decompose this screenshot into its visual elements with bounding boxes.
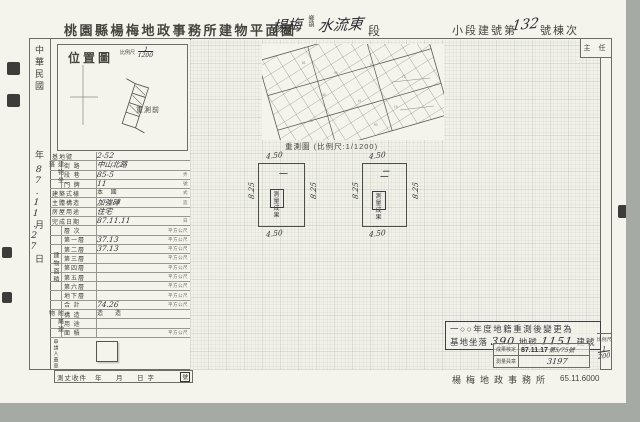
plan1-floor-label: 一 [277,167,288,180]
plan1-seal-stamp: 測量成果 [270,189,284,208]
svg-text:72: 72 [402,75,406,79]
svg-text:81: 81 [302,61,306,65]
binder-hole [7,94,20,107]
scale-box: 比例尺 1 200 [597,333,612,371]
table-row: 合 計74.26平方公尺 [50,301,190,310]
group-applicant: 申請人蓋章 [50,338,62,369]
cadastral-caption: 重測圖 (比例尺:1/1200) [285,141,378,152]
table-row: 層 次平方公尺 [50,226,190,235]
applicant-stamp-placeholder [96,341,118,362]
township-label: 鄉鎮 [306,15,313,27]
building-number-handwritten: 132 [511,15,540,34]
svg-text:8: 8 [370,63,372,67]
plan2-dim-left: 8.25 [351,182,360,200]
table-row: 第二層37.13平方公尺 [50,245,190,254]
group-annex: 附屬建物 [50,310,62,338]
receipt-label: 測丈收件 [55,372,87,382]
svg-text:96: 96 [334,71,338,75]
table-row: 第三層平方公尺 [50,254,190,263]
table-row: 主體構造加強磚造 [50,198,190,207]
plan2-floor-label: 二 [379,167,390,180]
cadastral-map: 81968 724561 193790 [262,44,444,140]
location-map-box: 位置圖 比例尺 1 1200 重測前 [57,44,188,151]
era-label: 中華民國 [33,45,45,93]
receipt-box: 測丈收件 年 月 日字 號 [54,370,193,383]
result-row1-label: 成果核定 [494,344,519,356]
svg-text:61: 61 [358,99,362,103]
scanner-background [0,403,640,422]
table-row: 街 路中山北路 [50,161,190,170]
office-name: 楊梅地政事務所 [452,373,550,386]
plan1-dim-right: 8.25 [309,182,318,200]
table-row: 完成日期87.11.11日 [50,217,190,226]
building-number-suffix: 號棟次 [540,22,579,38]
table-row: 構 造造 造 [50,310,190,319]
month-label: 月 [35,218,44,231]
scanner-background-right [626,0,640,422]
table-row: 面 積平方公尺 [50,329,190,338]
table-row: 第五層平方公尺 [50,273,190,282]
table-row: 第六層平方公尺 [50,282,190,291]
township-handwritten: 楊梅 [271,14,302,37]
table-row: 地下層平方公尺 [50,291,190,300]
binder-hole [7,62,20,75]
svg-text:19: 19 [394,105,398,109]
form-title: 桃園縣楊梅地政事務所建物平面圖 [64,20,297,39]
table-row: 用 途 [50,319,190,328]
section-handwritten: 水流東 [317,13,365,37]
svg-text:90: 90 [374,123,378,127]
result-table: 成果核定 87.11.17 第5/75號 測量員章 3197 [493,343,590,368]
scanned-building-plan-sheet: 桃園縣楊梅地政事務所建物平面圖 楊梅 鄉鎮 水流東 段 小段建號第 132 號棟… [0,0,640,422]
scale-label: 比例尺 [597,337,612,343]
examiner-box: 主 任 [580,38,612,58]
location-sketch [58,45,189,152]
day-label: 日 [35,252,44,265]
result-row1-value: 87.11.17 第5/75號 [519,344,590,356]
table-row: 第四層平方公尺 [50,264,190,273]
plan1-dim-left: 8.25 [247,182,256,200]
table-row: 第一層37.13平方公尺 [50,236,190,245]
group-address: 建物坐落 [50,161,62,189]
subsection-label: 小段建號第 [452,22,517,38]
group-area: 建物面積 [50,226,62,310]
receipt-number-box: 號 [180,372,190,382]
plan2-seal-stamp: 測量成果 [372,191,386,210]
scale-value: 1 200 [598,345,610,361]
print-code: 65.11.6000 [560,374,599,383]
remeasure-line1: 一○○年度地籍重測後變更為 [450,323,596,335]
location-annotation: 重測前 [136,105,160,115]
result-row2-label: 測量員章 [494,356,519,368]
receipt-fields: 年 月 日字 [87,372,180,382]
section-label: 段 [368,22,380,39]
examiner-label: 主 任 [584,43,609,53]
result-row2-value: 3197 [519,356,590,368]
year-label: 年 [35,148,44,161]
binder-hole [2,247,12,258]
table-row: 段 巷85-5弄 [50,171,190,180]
table-row: 門 牌11號 [50,180,190,189]
plan2-dim-right: 8.25 [411,182,420,200]
svg-text:45: 45 [322,93,326,97]
binder-hole [2,292,12,303]
building-info-table: 基地號2-52 街 路中山北路 段 巷85-5弄 門 牌11號 建築式樣本 國式… [50,152,190,338]
svg-text:37: 37 [310,119,314,123]
